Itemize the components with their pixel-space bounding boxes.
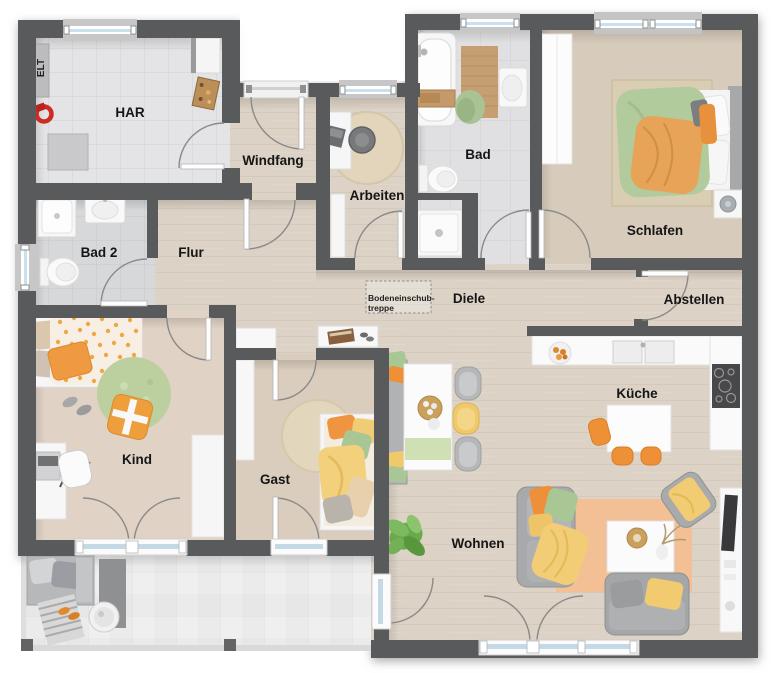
svg-text:Schlafen: Schlafen [627, 223, 683, 238]
svg-text:Arbeiten: Arbeiten [350, 188, 405, 203]
svg-text:Bad 2: Bad 2 [81, 245, 118, 260]
svg-text:Abstellen: Abstellen [664, 292, 725, 307]
svg-text:Flur: Flur [178, 245, 204, 260]
svg-text:Kind: Kind [122, 452, 152, 467]
svg-text:Windfang: Windfang [242, 153, 303, 168]
svg-text:ELT: ELT [36, 59, 47, 77]
svg-text:Bad: Bad [465, 147, 491, 162]
svg-text:Gast: Gast [260, 472, 291, 487]
svg-text:treppe: treppe [368, 303, 394, 313]
svg-text:Bodeneinschub-: Bodeneinschub- [368, 293, 435, 303]
svg-text:HAR: HAR [115, 105, 144, 120]
svg-text:Diele: Diele [453, 291, 486, 306]
svg-text:Wohnen: Wohnen [452, 536, 505, 551]
svg-text:Küche: Küche [616, 386, 658, 401]
